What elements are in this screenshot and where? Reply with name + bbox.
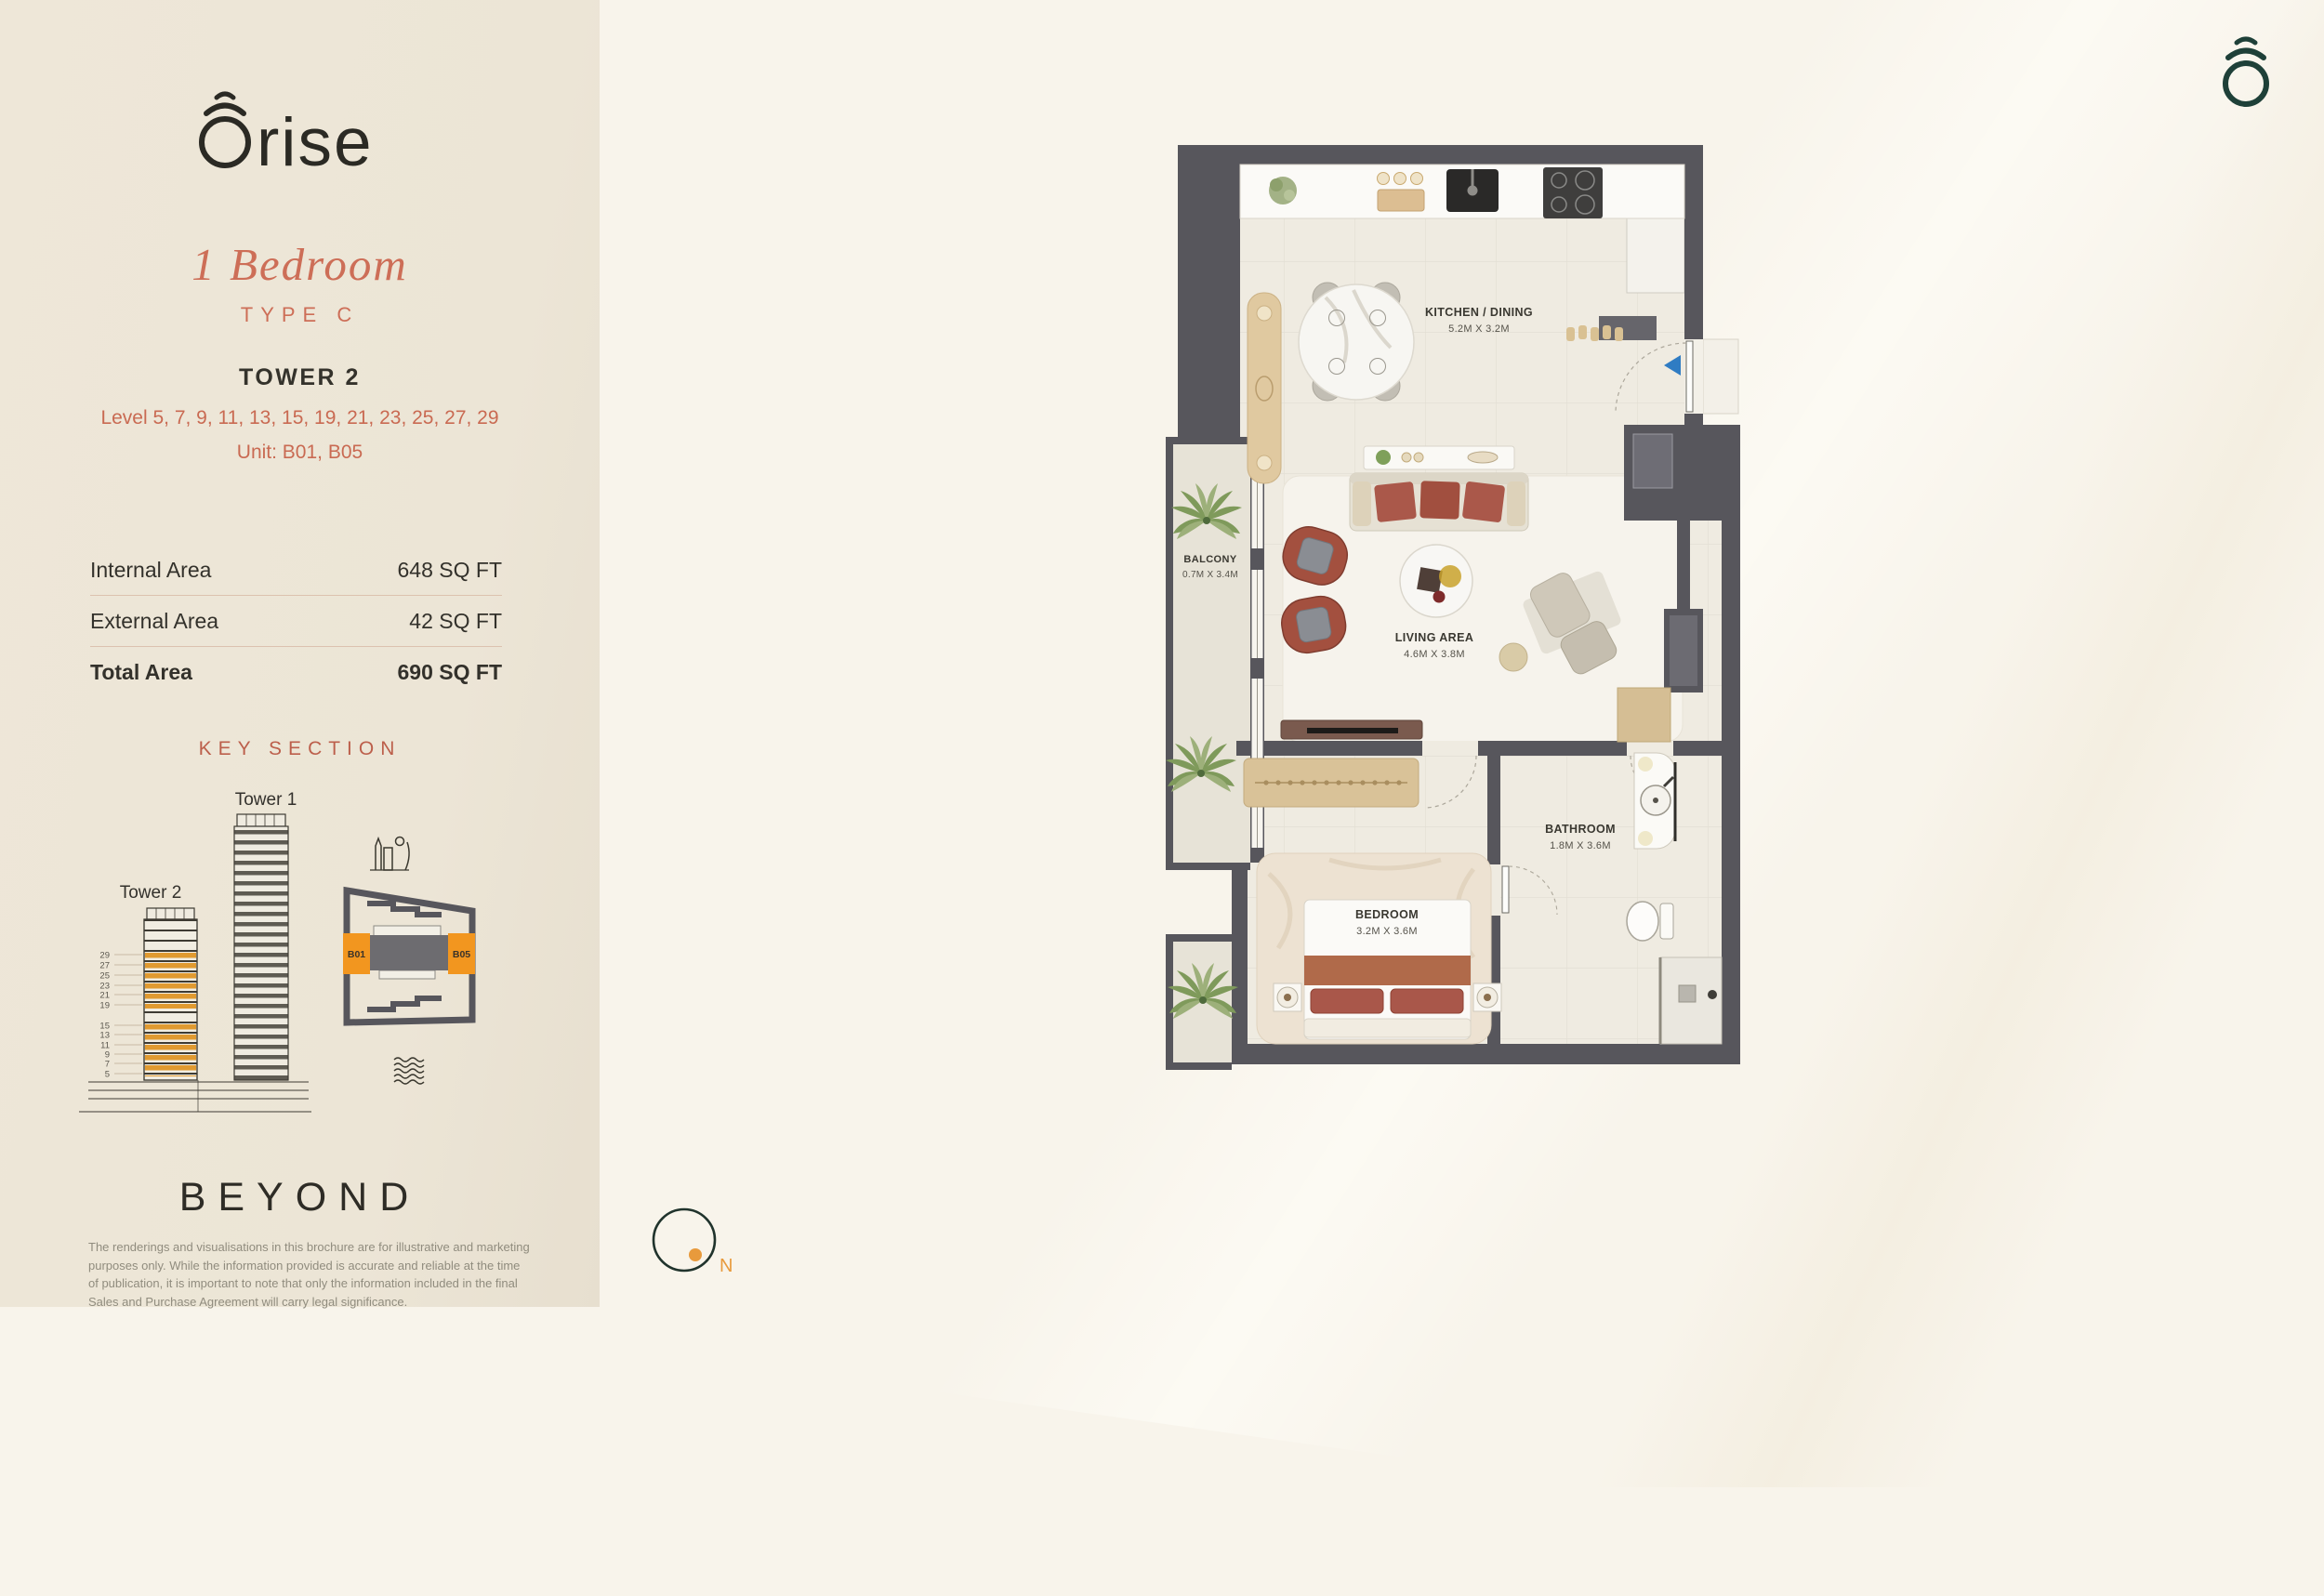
- svg-text:21: 21: [99, 991, 110, 1001]
- water-waves-icon: [394, 1058, 424, 1084]
- bedroom-label: BEDROOM: [1355, 908, 1419, 921]
- kitchen-dims: 5.2M X 3.2M: [1448, 323, 1510, 335]
- bathroom-label: BATHROOM: [1545, 823, 1616, 836]
- wardrobe: [1244, 758, 1419, 807]
- beyond-wordmark: BEYOND: [0, 1175, 600, 1220]
- toilet: [1627, 902, 1673, 941]
- entrance-door-leaf: [1686, 341, 1693, 412]
- console-table: [1364, 446, 1514, 469]
- compass-circle: [654, 1209, 715, 1271]
- total-area-value: 690 SQ FT: [398, 660, 502, 685]
- svg-text:15: 15: [99, 1022, 110, 1032]
- shower: [1660, 957, 1722, 1044]
- tv: [1307, 728, 1398, 733]
- compass-n-label: N: [720, 1256, 733, 1276]
- floor-plan: KITCHEN / DINING 5.2M X 3.2M BALCONY 0.7…: [1143, 121, 1766, 1106]
- balcony-label: BALCONY: [1183, 554, 1236, 565]
- dining-table: [1299, 283, 1414, 401]
- legal-disclaimer: The renderings and visualisations in thi…: [88, 1238, 533, 1311]
- svg-text:11: 11: [100, 1041, 110, 1051]
- cutting-board: [1378, 190, 1424, 211]
- svg-text:27: 27: [99, 961, 110, 971]
- svg-text:7: 7: [105, 1060, 110, 1070]
- unit-type-title: 1 Bedroom: [0, 238, 600, 291]
- tower1-diagram: [234, 814, 288, 1080]
- bedroom-dims: 3.2M X 3.6M: [1356, 926, 1418, 937]
- logo-o-ring: [202, 119, 248, 165]
- tower2-diagram: [144, 908, 197, 1080]
- brand-logo: rise: [0, 86, 600, 179]
- utility-box: [1633, 434, 1672, 488]
- svg-text:5: 5: [105, 1070, 110, 1080]
- levels-list: Level 5, 7, 9, 11, 13, 15, 19, 21, 23, 2…: [0, 407, 600, 429]
- table-row-external: External Area 42 SQ FT: [90, 596, 502, 647]
- total-area-label: Total Area: [90, 660, 192, 685]
- table-row-total: Total Area 690 SQ FT: [90, 647, 502, 697]
- balcony-dims: 0.7M X 3.4M: [1182, 570, 1238, 580]
- corner-logo: [2216, 30, 2276, 110]
- key-section-title: KEY SECTION: [0, 738, 600, 760]
- cooktop: [1543, 167, 1603, 218]
- compass-orange-dot: [689, 1248, 702, 1261]
- tv-wall: [1236, 741, 1422, 756]
- living-label: LIVING AREA: [1395, 631, 1474, 644]
- kitchen-counter: [1240, 165, 1684, 218]
- svg-text:23: 23: [99, 982, 110, 992]
- logo-text: rise: [257, 105, 374, 175]
- logo-accent-upper-arc: [217, 94, 233, 98]
- external-area-value: 42 SQ FT: [409, 609, 502, 634]
- bathroom-dims: 1.8M X 3.6M: [1550, 840, 1611, 851]
- svg-text:29: 29: [99, 951, 110, 961]
- tower1-label: Tower 1: [235, 790, 297, 810]
- unit-b05-highlight: [448, 933, 475, 974]
- unit-b01-highlight: [343, 933, 370, 974]
- console-bench: [1248, 293, 1281, 483]
- kitchen-label: KITCHEN / DINING: [1425, 306, 1533, 319]
- brochure-page: { "brand": { "logo_text": "rise" }, "uni…: [0, 0, 2324, 1307]
- unit-type-sub: TYPE C: [0, 303, 600, 327]
- north-compass: N: [641, 1199, 762, 1301]
- corner-logo-ring: [2225, 63, 2266, 104]
- tower2-label: Tower 2: [120, 883, 182, 903]
- orise-logo: rise: [193, 86, 407, 175]
- closet-inner: [1670, 615, 1697, 686]
- bath-storage: [1618, 688, 1670, 742]
- vanity: [1634, 753, 1675, 849]
- unit-b01-label: B01: [348, 949, 365, 960]
- floor-number-labels: 292725232119151311975: [99, 951, 110, 1080]
- external-area-label: External Area: [90, 609, 218, 634]
- sofa: [1350, 473, 1528, 531]
- podium-lines: [79, 1080, 311, 1112]
- units-list: Unit: B01, B05: [0, 442, 600, 464]
- spec-panel: 292725232119151311975 Tower 1 Tower 2 B0…: [0, 0, 600, 1307]
- tower-name: TOWER 2: [0, 364, 600, 391]
- logo-accent-lower-arc: [206, 106, 244, 114]
- table-row-internal: Internal Area 648 SQ FT: [90, 545, 502, 596]
- internal-area-value: 648 SQ FT: [398, 558, 502, 583]
- coffee-table: [1400, 545, 1472, 617]
- svg-text:13: 13: [99, 1031, 110, 1041]
- key-plan: B01 B05: [343, 890, 475, 1022]
- area-table: Internal Area 648 SQ FT External Area 42…: [90, 545, 502, 697]
- svg-text:19: 19: [99, 1001, 110, 1011]
- svg-text:9: 9: [105, 1050, 110, 1061]
- corner-logo-lower-arc: [2228, 51, 2264, 59]
- living-dims: 4.6M X 3.8M: [1404, 649, 1465, 660]
- svg-text:25: 25: [99, 971, 110, 982]
- tv-console: [1281, 720, 1422, 739]
- unit-b05-label: B05: [453, 949, 470, 960]
- pouf: [1499, 643, 1527, 671]
- floor-tick-lines: [114, 955, 142, 1074]
- corner-logo-upper-arc: [2237, 39, 2255, 43]
- skyline-icon: [370, 838, 409, 871]
- internal-area-label: Internal Area: [90, 558, 211, 583]
